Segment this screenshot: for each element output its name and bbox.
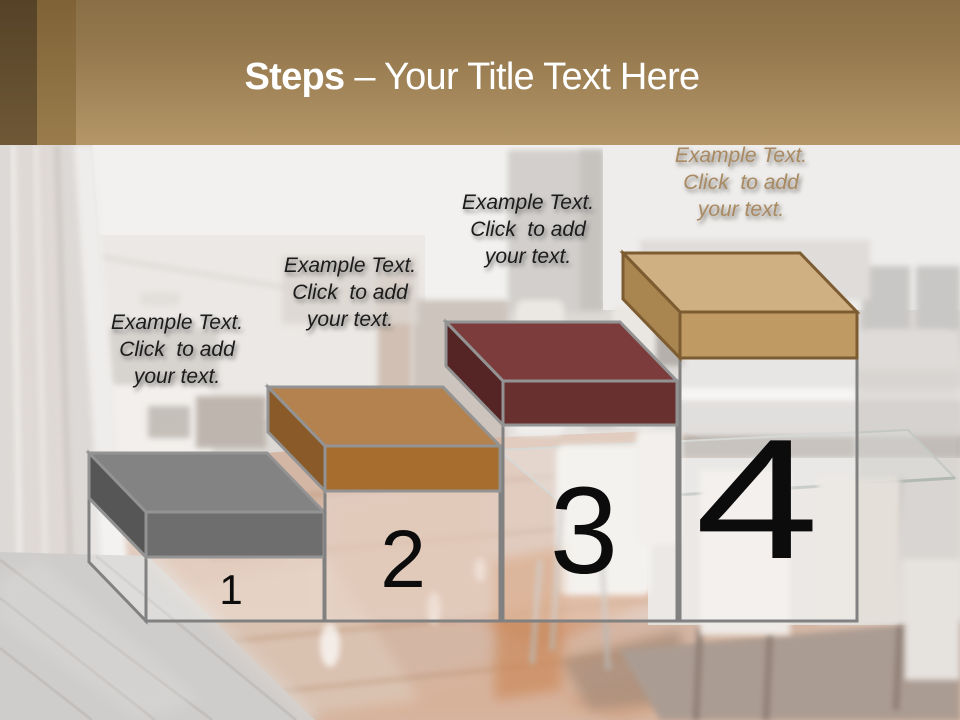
svg-text:2: 2 (380, 514, 426, 605)
svg-text:4: 4 (695, 404, 819, 595)
svg-text:1: 1 (219, 566, 242, 613)
svg-text:3: 3 (550, 463, 618, 600)
